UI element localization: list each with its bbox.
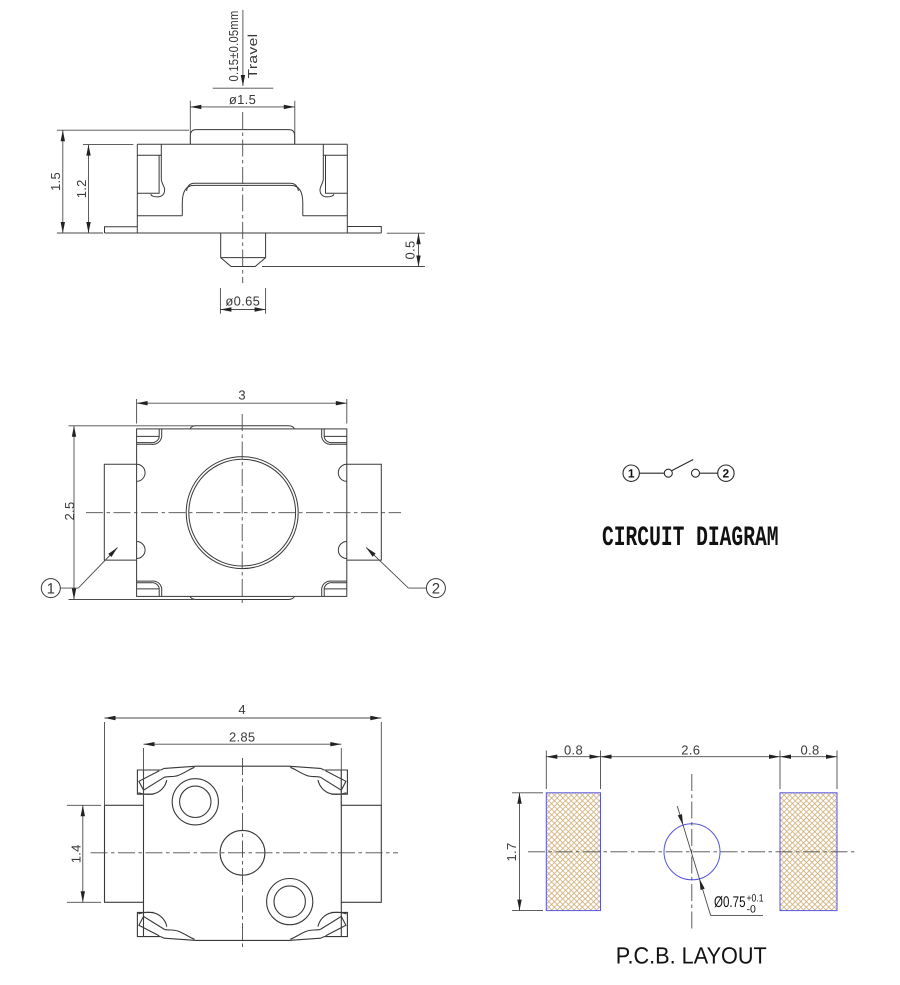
svg-text:1: 1 [628, 467, 635, 481]
svg-text:0.8: 0.8 [564, 742, 583, 757]
svg-text:1.4: 1.4 [69, 844, 84, 863]
svg-text:ø1.5: ø1.5 [229, 92, 256, 107]
svg-text:0.8: 0.8 [801, 742, 820, 757]
svg-text:2: 2 [723, 467, 730, 481]
svg-text:Ø0.75: Ø0.75 [714, 894, 746, 911]
svg-text:CIRCUIT DIAGRAM: CIRCUIT DIAGRAM [602, 523, 779, 554]
svg-text:1: 1 [47, 581, 55, 598]
svg-text:ø0.65: ø0.65 [225, 294, 260, 309]
svg-text:2.5: 2.5 [62, 502, 77, 521]
svg-text:1.2: 1.2 [74, 179, 89, 198]
svg-text:4: 4 [238, 702, 246, 717]
svg-text:P.C.B. LAYOUT: P.C.B. LAYOUT [616, 943, 767, 969]
svg-text:3: 3 [238, 388, 246, 403]
svg-text:1.5: 1.5 [48, 172, 63, 191]
svg-text:2: 2 [432, 581, 440, 598]
svg-text:0.5: 0.5 [403, 241, 418, 260]
svg-text:-0: -0 [747, 904, 756, 916]
svg-text:Travel: Travel [245, 34, 260, 79]
svg-text:1.7: 1.7 [504, 843, 519, 862]
svg-text:0.15±0.05mm: 0.15±0.05mm [226, 11, 241, 82]
svg-text:2.6: 2.6 [681, 742, 700, 757]
svg-text:2.85: 2.85 [229, 730, 256, 745]
